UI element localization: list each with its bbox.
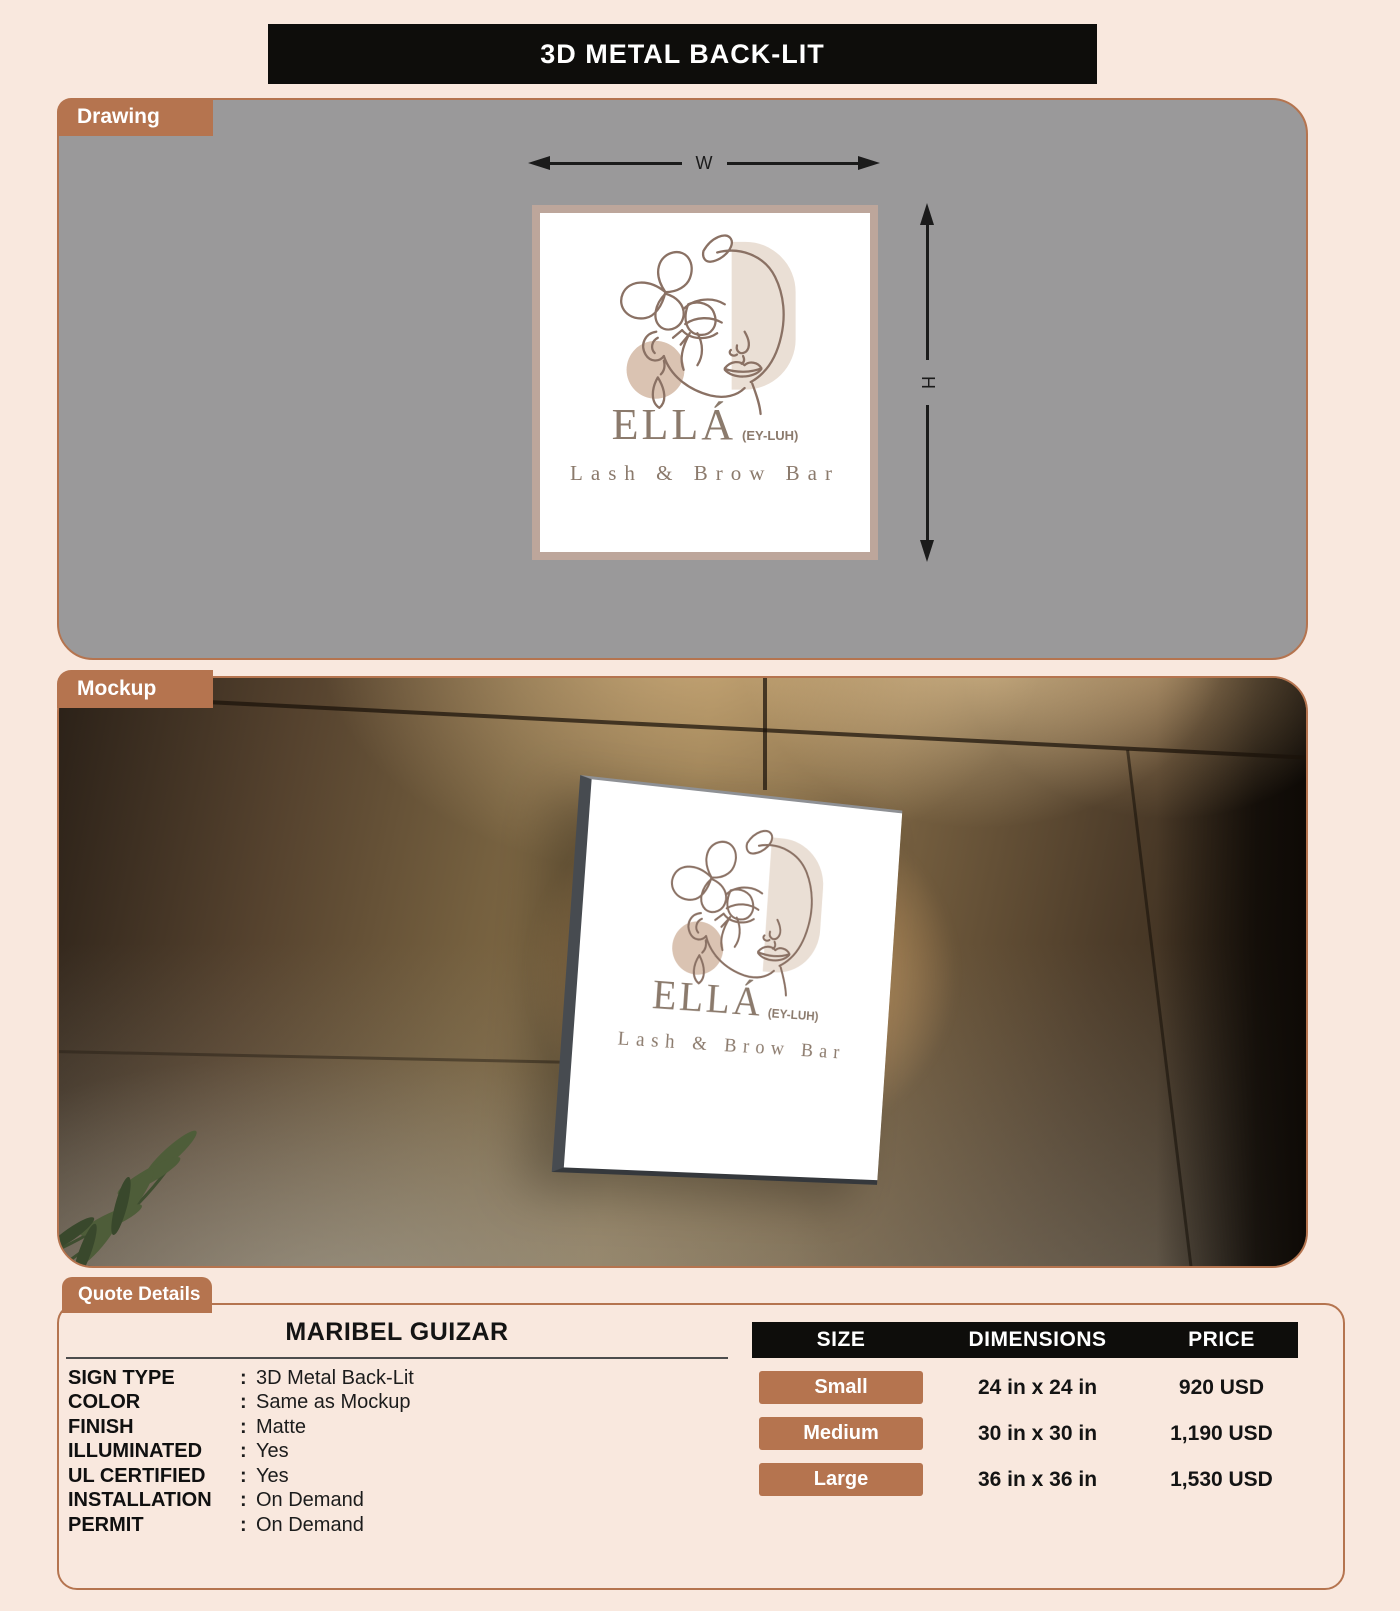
- spec-label: FINISH: [68, 1416, 240, 1439]
- brand-name-row: ELLÁ (EY-LUH): [612, 403, 799, 447]
- spec-value: Yes: [256, 1440, 728, 1463]
- dimensions-cell: 30 in x 30 in: [930, 1422, 1145, 1446]
- spec-label: ILLUMINATED: [68, 1440, 240, 1463]
- size-medium-button[interactable]: Medium: [759, 1417, 923, 1450]
- spec-row: COLOR : Same as Mockup: [68, 1391, 728, 1416]
- table-row: Large 36 in x 36 in 1,530 USD: [752, 1463, 1298, 1496]
- table-row: Medium 30 in x 30 in 1,190 USD: [752, 1417, 1298, 1450]
- column-price: PRICE: [1145, 1328, 1298, 1352]
- spec-label: SIGN TYPE: [68, 1367, 240, 1390]
- table-row: Small 24 in x 24 in 920 USD: [752, 1371, 1298, 1404]
- brand-pronunciation: (EY-LUH): [767, 1006, 819, 1024]
- price-cell: 920 USD: [1145, 1376, 1298, 1400]
- spec-value: On Demand: [256, 1489, 728, 1512]
- sign-drawing: ELLÁ (EY-LUH) Lash & Brow Bar: [532, 205, 878, 560]
- height-label: H: [905, 376, 950, 389]
- spec-row: ILLUMINATED : Yes: [68, 1440, 728, 1465]
- spec-separator: :: [240, 1416, 256, 1439]
- logo-circle-shape: [627, 341, 685, 399]
- arrow-up-icon: [920, 203, 934, 225]
- height-dimension-arrow: H: [914, 203, 940, 562]
- wall-photo: ELLÁ (EY-LUH) Lash & Brow Bar: [59, 678, 1306, 1266]
- wall-seam: [1126, 750, 1195, 1268]
- spec-separator: :: [240, 1465, 256, 1488]
- spec-label: UL CERTIFIED: [68, 1465, 240, 1488]
- mockup-sign: ELLÁ (EY-LUH) Lash & Brow Bar: [552, 775, 903, 1185]
- spec-separator: :: [240, 1514, 256, 1537]
- spec-separator: :: [240, 1440, 256, 1463]
- brand-name: ELLÁ: [612, 403, 736, 447]
- quote-details-tab-label: Quote Details: [78, 1284, 200, 1306]
- spec-value: Yes: [256, 1465, 728, 1488]
- name-divider: [66, 1357, 728, 1359]
- dimensions-cell: 36 in x 36 in: [930, 1468, 1145, 1492]
- arrow-right-icon: [858, 156, 880, 170]
- brand-logo-art: [575, 219, 835, 417]
- brand-pronunciation: (EY-LUH): [742, 428, 798, 443]
- drawing-tab-label: Drawing: [77, 105, 160, 129]
- price-table-body: Small 24 in x 24 in 920 USD Medium 30 in…: [752, 1371, 1298, 1509]
- spec-row: INSTALLATION : On Demand: [68, 1489, 728, 1514]
- arrow-left-icon: [528, 156, 550, 170]
- quote-details-tab: Quote Details: [62, 1277, 212, 1313]
- spec-separator: :: [240, 1489, 256, 1512]
- spec-label: COLOR: [68, 1391, 240, 1414]
- price-cell: 1,190 USD: [1145, 1422, 1298, 1446]
- spec-row: UL CERTIFIED : Yes: [68, 1464, 728, 1489]
- column-dimensions: DIMENSIONS: [930, 1328, 1145, 1352]
- plant-leaves-icon: [57, 1102, 301, 1268]
- quote-document-page: 3D METAL BACK-LIT Drawing W: [0, 0, 1400, 1611]
- mockup-tab-label: Mockup: [77, 677, 156, 701]
- price-table-header: SIZE DIMENSIONS PRICE: [752, 1322, 1298, 1358]
- dimensions-cell: 24 in x 24 in: [930, 1376, 1145, 1400]
- spec-value: On Demand: [256, 1514, 728, 1537]
- spec-list: SIGN TYPE : 3D Metal Back-Lit COLOR : Sa…: [68, 1366, 728, 1538]
- drawing-tab: Drawing: [57, 98, 213, 136]
- mockup-panel: ELLÁ (EY-LUH) Lash & Brow Bar: [57, 676, 1308, 1268]
- arrow-down-icon: [920, 540, 934, 562]
- price-cell: 1,530 USD: [1145, 1468, 1298, 1492]
- spec-row: FINISH : Matte: [68, 1415, 728, 1440]
- brand-tagline: Lash & Brow Bar: [617, 1028, 846, 1065]
- logo-capsule-shape: [732, 242, 796, 390]
- header-bar: 3D METAL BACK-LIT: [268, 24, 1097, 84]
- spec-value: Matte: [256, 1416, 728, 1439]
- brand-name: ELLÁ: [651, 975, 764, 1024]
- spec-value: Same as Mockup: [256, 1391, 728, 1414]
- width-label: W: [682, 153, 727, 174]
- spec-separator: :: [240, 1367, 256, 1390]
- spec-label: PERMIT: [68, 1514, 240, 1537]
- size-large-button[interactable]: Large: [759, 1463, 923, 1496]
- spec-value: 3D Metal Back-Lit: [256, 1367, 728, 1390]
- brand-tagline: Lash & Brow Bar: [570, 461, 840, 486]
- width-dimension-arrow: W: [528, 152, 880, 174]
- mockup-tab: Mockup: [57, 670, 213, 708]
- page-title: 3D METAL BACK-LIT: [540, 39, 824, 70]
- spec-label: INSTALLATION: [68, 1489, 240, 1512]
- column-size: SIZE: [752, 1328, 930, 1352]
- size-small-button[interactable]: Small: [759, 1371, 923, 1404]
- spec-separator: :: [240, 1391, 256, 1414]
- spec-row: SIGN TYPE : 3D Metal Back-Lit: [68, 1366, 728, 1391]
- customer-name: MARIBEL GUIZAR: [66, 1318, 728, 1347]
- spec-row: PERMIT : On Demand: [68, 1513, 728, 1538]
